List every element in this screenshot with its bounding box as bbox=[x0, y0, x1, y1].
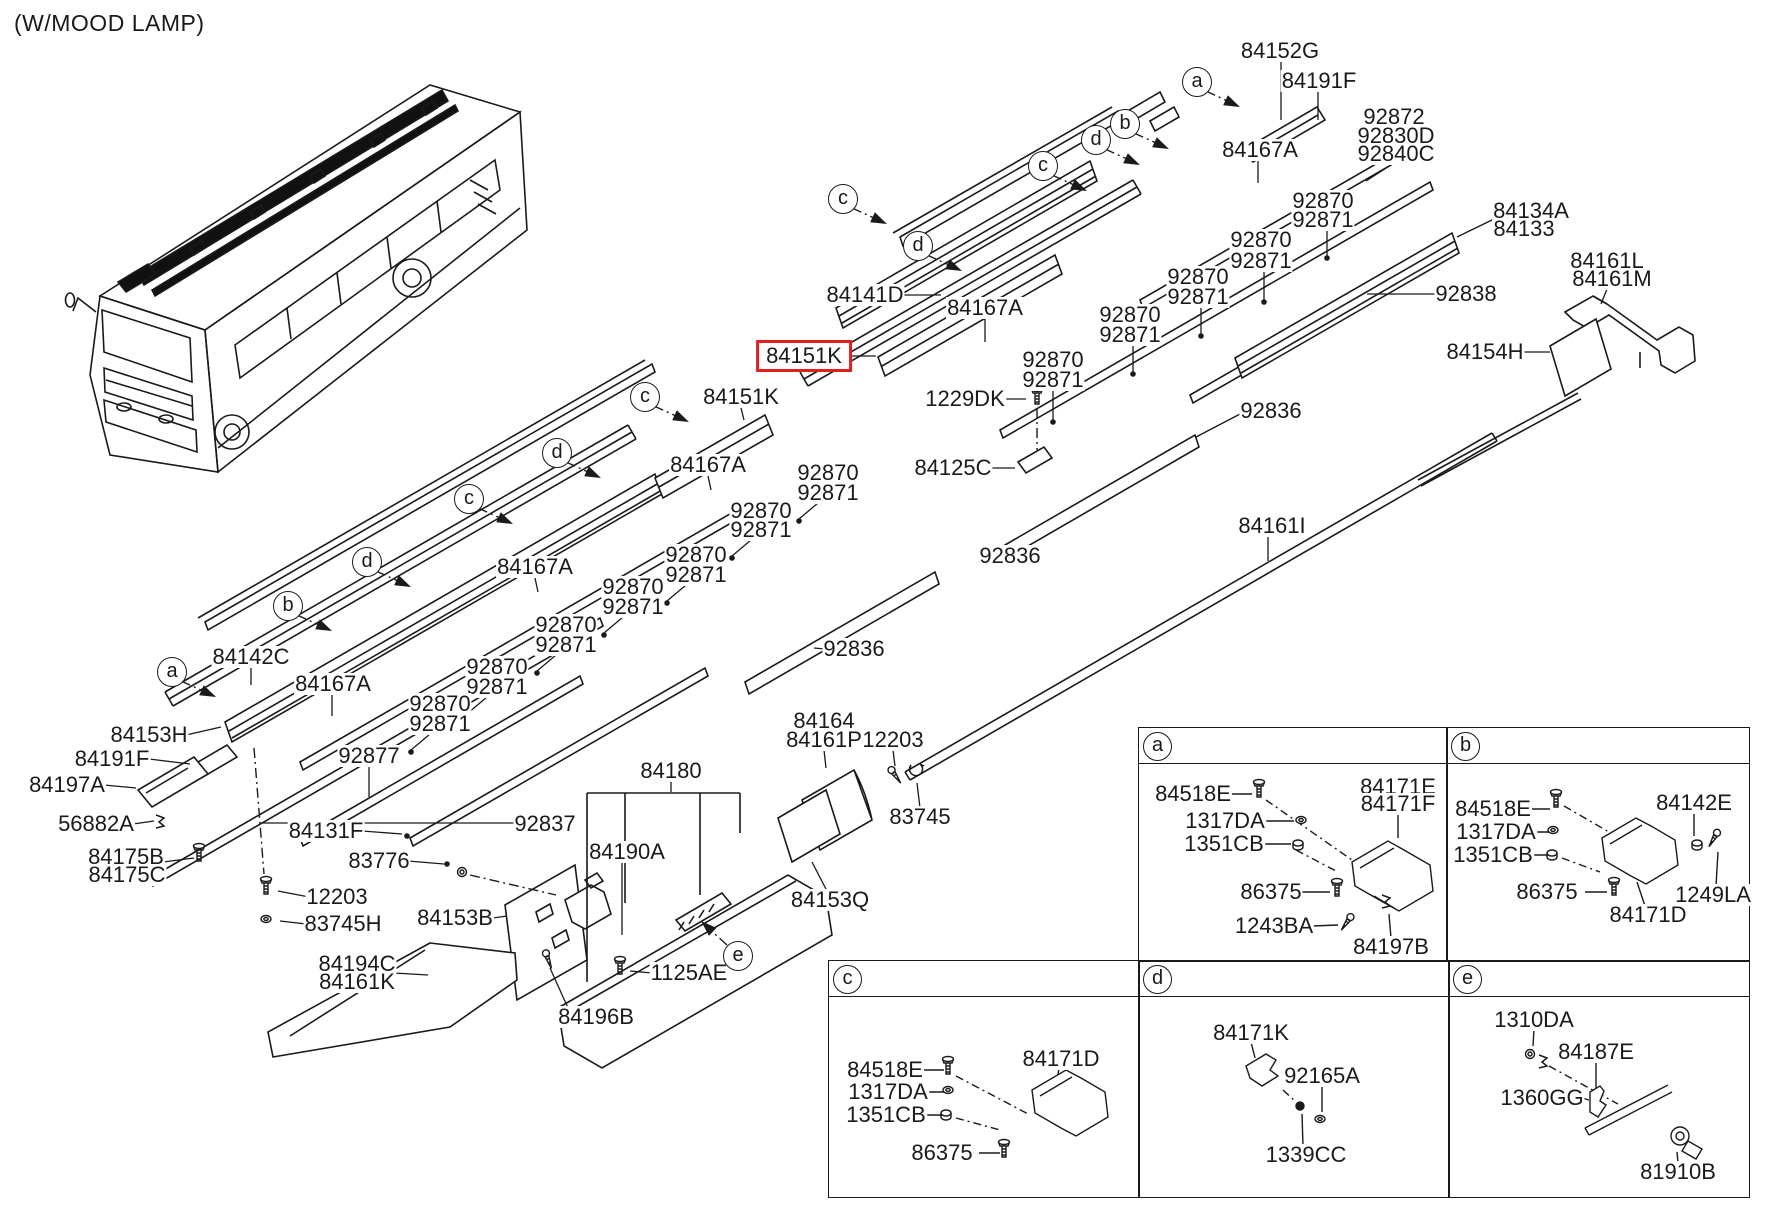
part-label-1351CB: 1351CB bbox=[845, 1104, 927, 1126]
part-label-1360GG: 1360GG bbox=[1499, 1087, 1584, 1109]
part-label-86375: 86375 bbox=[910, 1142, 973, 1164]
part-label-84175C: 84175C bbox=[87, 864, 166, 886]
callout-b: b bbox=[273, 591, 303, 621]
part-label-1339CC: 1339CC bbox=[1265, 1144, 1348, 1166]
highlighted-part-label-84151K: 84151K bbox=[756, 340, 852, 372]
part-label-12203: 12203 bbox=[305, 886, 368, 908]
part-label-84171D: 84171D bbox=[1021, 1048, 1100, 1070]
part-label-92871: 92871 bbox=[664, 564, 727, 586]
page-title: (W/MOOD LAMP) bbox=[14, 10, 205, 37]
part-label-84518E: 84518E bbox=[1454, 798, 1532, 820]
part-label-84197A: 84197A bbox=[28, 774, 106, 796]
panel-header bbox=[829, 961, 1139, 997]
part-label-92836: 92836 bbox=[978, 545, 1041, 567]
part-label-92871: 92871 bbox=[534, 634, 597, 656]
upper-molding-strips bbox=[745, 92, 1695, 780]
callout-e: e bbox=[723, 941, 753, 971]
part-label-84131F: 84131F bbox=[288, 820, 365, 842]
part-label-84167A: 84167A bbox=[669, 454, 747, 476]
part-label-84142E: 84142E bbox=[1655, 792, 1733, 814]
part-label-1229DK: 1229DK bbox=[924, 388, 1006, 410]
callout-d: d bbox=[1081, 125, 1111, 155]
part-label-84171K: 84171K bbox=[1212, 1022, 1290, 1044]
panel-header bbox=[1449, 961, 1749, 997]
part-label-1317DA: 1317DA bbox=[1184, 810, 1266, 832]
part-label-84153B: 84153B bbox=[416, 907, 494, 929]
part-label-92871: 92871 bbox=[1291, 209, 1354, 231]
part-label-92840C: 92840C bbox=[1356, 143, 1435, 165]
part-label-84171F: 84171F bbox=[1360, 793, 1437, 815]
part-label-1243BA: 1243BA bbox=[1234, 915, 1314, 937]
part-label-1351CB: 1351CB bbox=[1452, 844, 1534, 866]
part-label-92836: 92836 bbox=[822, 638, 885, 660]
part-label-84142C: 84142C bbox=[211, 646, 290, 668]
callout-c: c bbox=[630, 382, 660, 412]
parts-diagram-page: (W/MOOD LAMP) a84518E1317DA1351CB8637512… bbox=[0, 0, 1772, 1211]
callout-d: d bbox=[542, 438, 572, 468]
part-label-84152G: 84152G bbox=[1240, 40, 1320, 62]
lower-molding-strips bbox=[138, 360, 872, 1068]
callout-c: c bbox=[454, 484, 484, 514]
part-label-84197B: 84197B bbox=[1352, 936, 1430, 958]
callout-a: a bbox=[1182, 67, 1212, 97]
part-label-84180: 84180 bbox=[639, 760, 702, 782]
panel-header bbox=[1139, 728, 1447, 764]
part-label-56882A: 56882A bbox=[57, 813, 135, 835]
part-label-84518E: 84518E bbox=[1154, 783, 1232, 805]
part-label-84167A: 84167A bbox=[496, 556, 574, 578]
part-label-84153Q: 84153Q bbox=[790, 889, 870, 911]
part-label-92165A: 92165A bbox=[1283, 1065, 1361, 1087]
panel-letter-a: a bbox=[1143, 732, 1172, 761]
part-label-92836: 92836 bbox=[1239, 400, 1302, 422]
part-label-86375: 86375 bbox=[1239, 881, 1302, 903]
callout-d: d bbox=[352, 547, 382, 577]
part-label-1317DA: 1317DA bbox=[847, 1081, 929, 1103]
part-label-92871: 92871 bbox=[1021, 369, 1084, 391]
part-label-92871: 92871 bbox=[1098, 324, 1161, 346]
part-label-83776: 83776 bbox=[347, 850, 410, 872]
part-label-84125C: 84125C bbox=[913, 457, 992, 479]
bus-illustration bbox=[66, 85, 528, 472]
part-label-84133: 84133 bbox=[1492, 218, 1555, 240]
part-label-92871: 92871 bbox=[796, 482, 859, 504]
panel-header bbox=[1447, 728, 1749, 764]
part-label-84141D: 84141D bbox=[825, 284, 904, 306]
callout-a: a bbox=[157, 657, 187, 687]
panel-letter-c: c bbox=[833, 965, 862, 994]
part-label-84518E: 84518E bbox=[846, 1059, 924, 1081]
part-label-86375: 86375 bbox=[1515, 881, 1578, 903]
panel-letter-b: b bbox=[1451, 732, 1480, 761]
part-label-84154H: 84154H bbox=[1445, 341, 1524, 363]
part-label-84190A: 84190A bbox=[588, 841, 666, 863]
part-label-84167A: 84167A bbox=[946, 297, 1024, 319]
part-label-92871: 92871 bbox=[465, 676, 528, 698]
part-label-1125AE: 1125AE bbox=[650, 962, 729, 984]
part-label-92871: 92871 bbox=[1166, 286, 1229, 308]
part-label-92871: 92871 bbox=[729, 519, 792, 541]
part-label-92877: 92877 bbox=[337, 745, 400, 767]
part-label-84171D: 84171D bbox=[1608, 904, 1687, 926]
part-label-84153H: 84153H bbox=[109, 724, 188, 746]
panel-letter-d: d bbox=[1143, 965, 1172, 994]
part-label-83745H: 83745H bbox=[303, 913, 382, 935]
part-label-83745: 83745 bbox=[888, 806, 951, 828]
part-label-84161M: 84161M bbox=[1571, 268, 1653, 290]
part-label-84191F: 84191F bbox=[74, 748, 151, 770]
part-label-92871: 92871 bbox=[601, 596, 664, 618]
part-label-84191F: 84191F bbox=[1281, 70, 1358, 92]
part-label-81910B: 81910B bbox=[1639, 1161, 1717, 1183]
callout-c: c bbox=[828, 184, 858, 214]
part-label-84161K: 84161K bbox=[318, 971, 396, 993]
part-label-84196B: 84196B bbox=[557, 1006, 635, 1028]
part-label-92838: 92838 bbox=[1434, 283, 1497, 305]
part-label-1310DA: 1310DA bbox=[1493, 1009, 1575, 1031]
part-label-1249LA: 1249LA bbox=[1674, 884, 1752, 906]
part-label-92837: 92837 bbox=[513, 813, 576, 835]
part-label-84187E: 84187E bbox=[1557, 1041, 1635, 1063]
part-label-84161P: 84161P bbox=[785, 729, 863, 751]
part-label-1351CB: 1351CB bbox=[1183, 833, 1265, 855]
callout-d: d bbox=[903, 231, 933, 261]
part-label-92871: 92871 bbox=[1229, 250, 1292, 272]
callout-b: b bbox=[1110, 109, 1140, 139]
part-label-84167A: 84167A bbox=[1221, 139, 1299, 161]
panel-letter-e: e bbox=[1453, 965, 1482, 994]
part-label-92871: 92871 bbox=[408, 713, 471, 735]
callout-c: c bbox=[1028, 151, 1058, 181]
panel-header bbox=[1139, 961, 1449, 997]
part-label-84161I: 84161I bbox=[1237, 515, 1306, 537]
part-label-12203: 12203 bbox=[861, 729, 924, 751]
part-label-1317DA: 1317DA bbox=[1455, 821, 1537, 843]
part-label-84167A: 84167A bbox=[294, 673, 372, 695]
part-label-84151K: 84151K bbox=[702, 386, 780, 408]
